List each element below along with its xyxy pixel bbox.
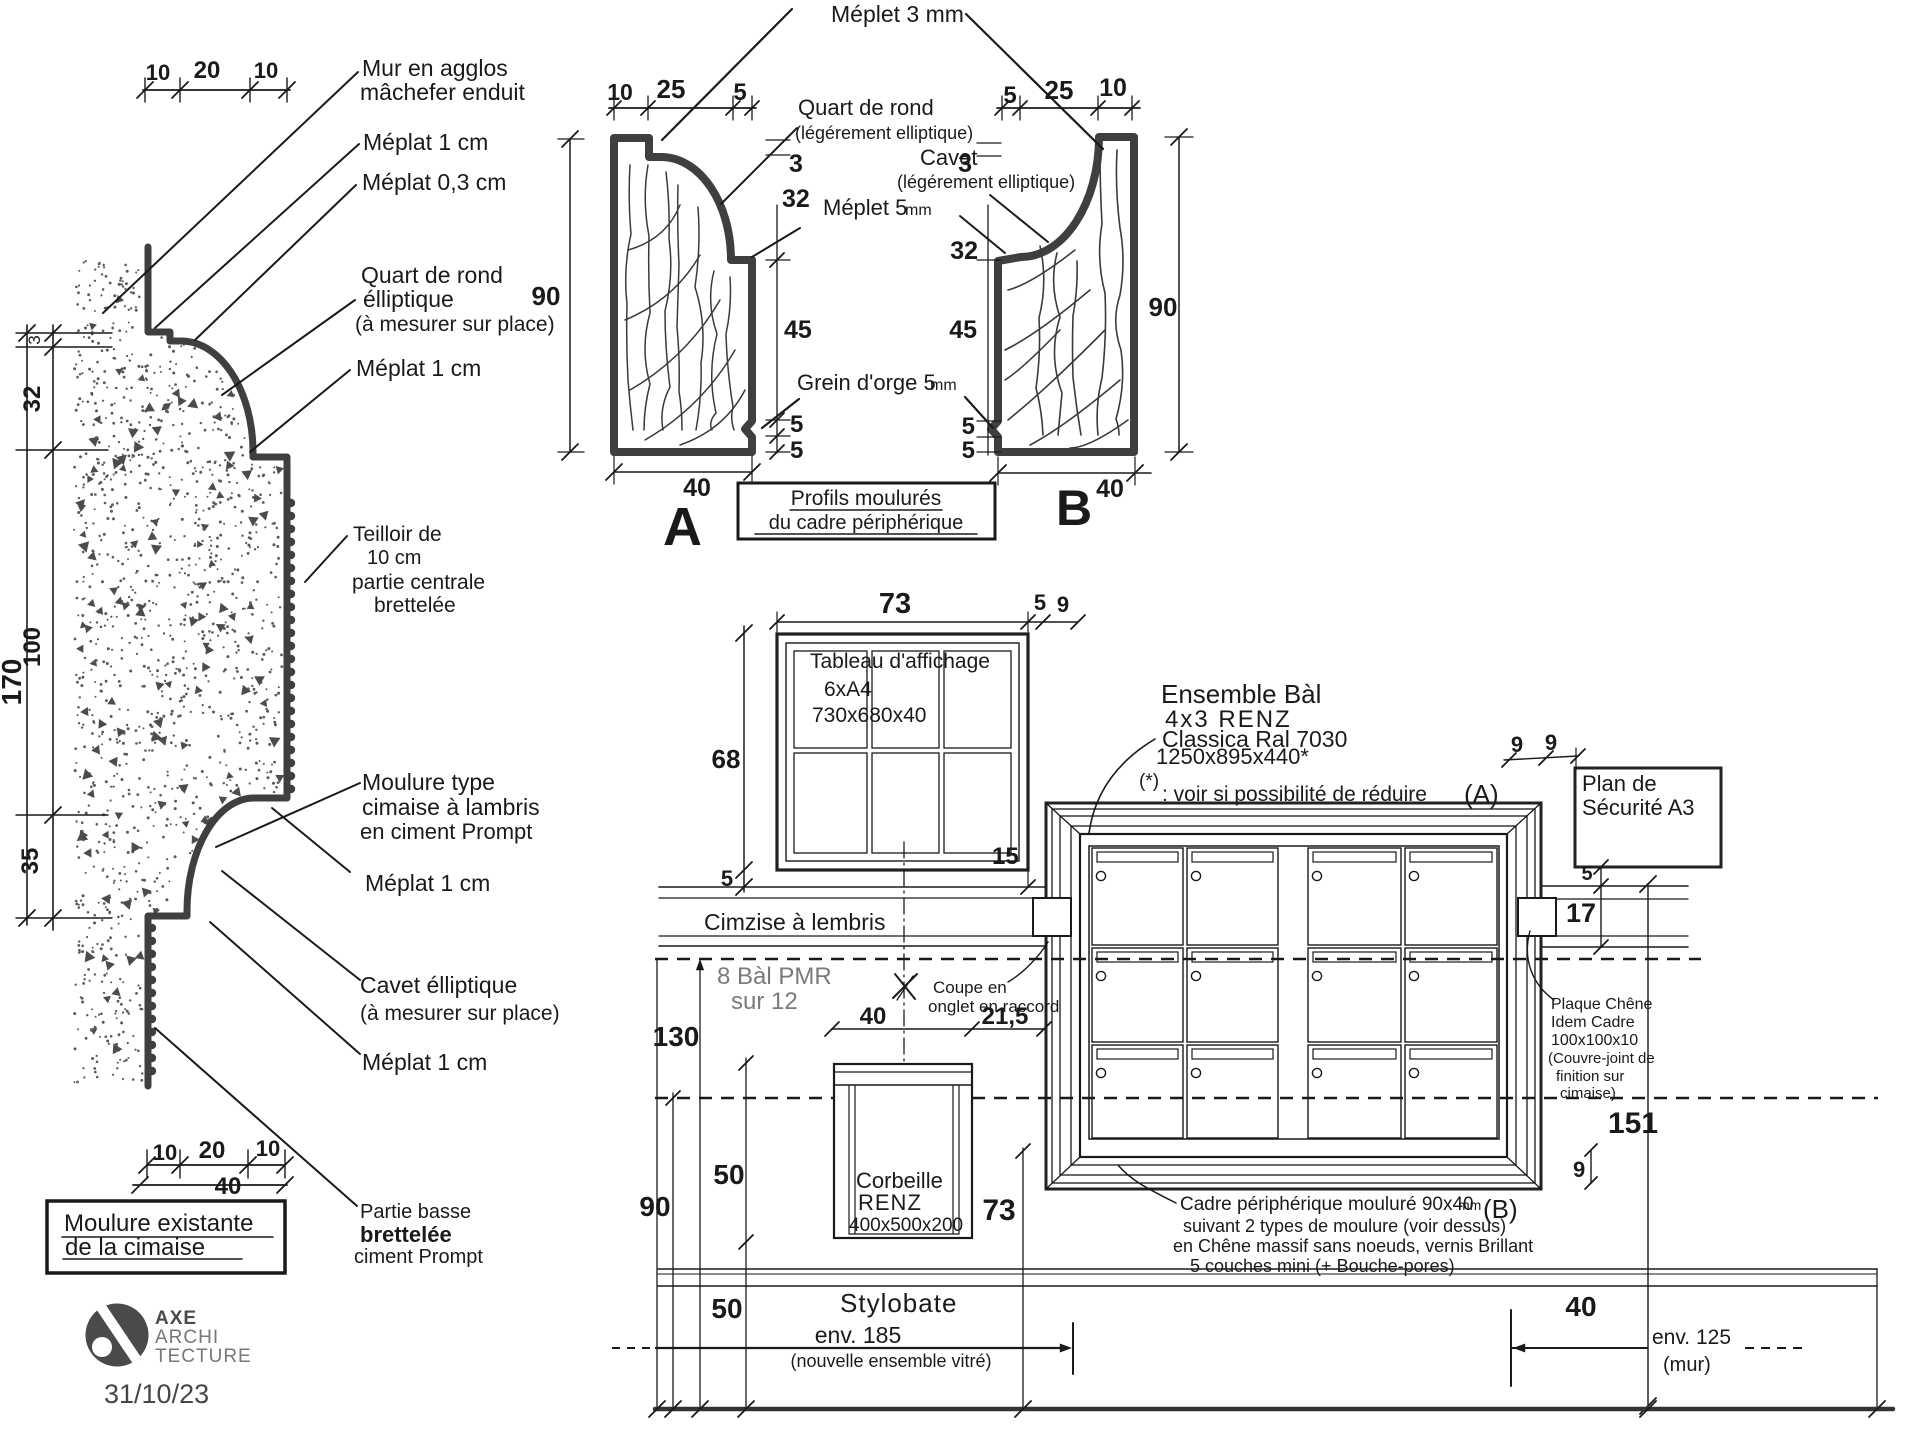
svg-text:Cavet élliptique: Cavet élliptique (360, 972, 517, 998)
svg-text:40: 40 (1565, 1291, 1596, 1322)
svg-text:25: 25 (657, 74, 686, 104)
svg-text:1250x895x440*: 1250x895x440* (1156, 744, 1309, 769)
svg-text:(A): (A) (1464, 779, 1499, 809)
svg-text:Méplat 1 cm: Méplat 1 cm (362, 1049, 487, 1075)
svg-text:élliptique: élliptique (363, 286, 454, 312)
svg-text:TECTURE: TECTURE (155, 1346, 252, 1367)
svg-text:Méplat 1 cm: Méplat 1 cm (363, 129, 488, 155)
svg-text:du cadre périphérique: du cadre périphérique (769, 512, 964, 534)
svg-text:(à mesurer sur place): (à mesurer sur place) (360, 1002, 560, 1025)
svg-text:5: 5 (790, 411, 803, 438)
svg-text:ciment Prompt: ciment Prompt (354, 1246, 483, 1268)
svg-text:31/10/23: 31/10/23 (104, 1379, 209, 1409)
svg-text:brettelée: brettelée (360, 1222, 452, 1247)
svg-text:10: 10 (1099, 74, 1127, 102)
svg-text:Méplat 0,3 cm: Méplat 0,3 cm (362, 169, 506, 195)
svg-text:68: 68 (712, 744, 741, 774)
svg-text:: voir si possibilité de rédui: : voir si possibilité de réduire (1162, 783, 1427, 806)
svg-text:brettelée: brettelée (374, 594, 456, 617)
svg-text:suivant 2 types de moulure: suivant 2 types de moulure (voir dessus) (1183, 1216, 1506, 1236)
svg-text:RENZ: RENZ (858, 1190, 922, 1215)
svg-text:mm: mm (1458, 1197, 1481, 1213)
svg-text:90: 90 (532, 281, 561, 311)
svg-text:5: 5 (962, 413, 975, 440)
svg-text:Cimzise à lembris: Cimzise à lembris (704, 909, 885, 935)
svg-text:Tableau d'affichage: Tableau d'affichage (810, 650, 990, 673)
svg-text:130: 130 (653, 1021, 700, 1052)
svg-text:Coupe en: Coupe en (933, 978, 1007, 997)
svg-text:finition sur: finition sur (1556, 1068, 1624, 1085)
svg-text:40: 40 (1096, 475, 1124, 503)
svg-text:5: 5 (733, 79, 746, 106)
svg-text:5: 5 (1581, 863, 1592, 885)
svg-text:Moulure type: Moulure type (362, 769, 495, 795)
svg-text:73: 73 (982, 1194, 1015, 1227)
svg-text:Quart de rond: Quart de rond (798, 95, 934, 120)
svg-text:10: 10 (256, 1136, 280, 1161)
svg-text:50: 50 (711, 1293, 742, 1324)
svg-text:90: 90 (639, 1191, 670, 1222)
svg-text:10: 10 (146, 60, 170, 85)
svg-text:40: 40 (215, 1173, 242, 1200)
svg-text:(mur): (mur) (1663, 1354, 1711, 1376)
svg-text:cimaise): cimaise) (1560, 1085, 1616, 1102)
svg-text:151: 151 (1608, 1107, 1658, 1140)
svg-text:sur 12: sur 12 (731, 988, 798, 1015)
svg-text:mâchefer enduit: mâchefer enduit (360, 79, 526, 105)
svg-text:8 Bàl PMR: 8 Bàl PMR (717, 963, 832, 990)
svg-text:5: 5 (1034, 590, 1046, 615)
svg-text:Cavet: Cavet (920, 145, 977, 170)
svg-text:50: 50 (713, 1159, 744, 1190)
svg-text:32: 32 (19, 386, 46, 413)
svg-text:ARCHI: ARCHI (155, 1327, 219, 1348)
svg-text:10: 10 (254, 58, 278, 83)
svg-text:Méplat 1 cm: Méplat 1 cm (365, 870, 490, 896)
svg-text:730x680x40: 730x680x40 (812, 704, 926, 727)
svg-text:15: 15 (992, 843, 1019, 870)
svg-text:Plaque Chêne: Plaque Chêne (1551, 996, 1653, 1013)
svg-text:21,5: 21,5 (982, 1003, 1029, 1030)
svg-text:400x500x200: 400x500x200 (849, 1215, 963, 1236)
svg-text:45: 45 (949, 316, 977, 344)
svg-text:en Chêne massif sans noeuds,: en Chêne massif sans noeuds, vernis Bril… (1173, 1236, 1533, 1256)
svg-text:5 couches mini (+ Bouche-pore: 5 couches mini (+ Bouche-pores) (1190, 1256, 1455, 1276)
svg-text:Sécurité A3: Sécurité A3 (1582, 795, 1695, 820)
svg-text:3: 3 (25, 335, 44, 344)
svg-text:(*): (*) (1139, 771, 1159, 792)
svg-text:9: 9 (1511, 732, 1523, 757)
svg-text:cimaise à lambris: cimaise à lambris (362, 794, 540, 820)
svg-text:A: A (663, 497, 702, 557)
svg-text:Plan de: Plan de (1582, 771, 1657, 796)
svg-text:B: B (1056, 480, 1092, 536)
svg-text:100x100x10: 100x100x10 (1551, 1032, 1638, 1049)
svg-text:9: 9 (1057, 592, 1069, 617)
svg-text:10 cm: 10 cm (367, 547, 421, 569)
svg-text:35: 35 (17, 848, 44, 875)
svg-text:5: 5 (1003, 82, 1016, 109)
svg-text:Quart de rond: Quart de rond (361, 262, 503, 288)
svg-text:40: 40 (860, 1003, 887, 1030)
svg-text:10: 10 (607, 79, 633, 105)
svg-text:17: 17 (1566, 898, 1596, 928)
svg-text:Stylobate: Stylobate (840, 1288, 957, 1318)
svg-text:mm: mm (930, 377, 957, 394)
svg-text:env. 185: env. 185 (815, 1322, 902, 1348)
svg-text:en ciment Prompt: en ciment Prompt (360, 819, 532, 844)
svg-text:Cadre périphérique mouluré 90x: Cadre périphérique mouluré 90x40 (1180, 1194, 1474, 1215)
svg-text:Ensemble Bàl: Ensemble Bàl (1161, 679, 1321, 709)
svg-text:(nouvelle ensemble vitré): (nouvelle ensemble vitré) (790, 1351, 991, 1371)
svg-text:73: 73 (879, 588, 911, 620)
svg-text:100: 100 (19, 627, 46, 667)
svg-text:Partie basse: Partie basse (360, 1201, 471, 1223)
svg-text:Méplat 1 cm: Méplat 1 cm (356, 355, 481, 381)
svg-text:(légérement elliptique): (légérement elliptique) (795, 123, 973, 143)
svg-text:Mur en agglos: Mur en agglos (362, 55, 508, 81)
svg-text:Profils moulurés: Profils moulurés (791, 487, 942, 510)
svg-text:(à mesurer sur place): (à mesurer sur place) (355, 313, 555, 336)
svg-text:25: 25 (1045, 75, 1074, 105)
svg-text:Méplet 3 mm: Méplet 3 mm (831, 1, 964, 27)
svg-text:5: 5 (962, 437, 975, 464)
svg-text:3: 3 (789, 150, 803, 178)
svg-text:5: 5 (721, 866, 733, 891)
svg-text:(légérement elliptique): (légérement elliptique) (897, 172, 1075, 192)
svg-text:Idem Cadre: Idem Cadre (1551, 1014, 1635, 1031)
svg-text:90: 90 (1149, 292, 1178, 322)
svg-text:(Couvre-joint de: (Couvre-joint de (1548, 1050, 1655, 1067)
svg-text:de la cimaise: de la cimaise (65, 1234, 205, 1261)
svg-text:env. 125: env. 125 (1652, 1326, 1731, 1349)
svg-text:9: 9 (1573, 1157, 1585, 1182)
svg-text:Moulure existante: Moulure existante (64, 1210, 253, 1237)
svg-text:20: 20 (199, 1137, 226, 1164)
svg-text:5: 5 (790, 437, 803, 464)
svg-text:Grein d'orge 5: Grein d'orge 5 (797, 370, 936, 395)
svg-text:45: 45 (784, 316, 812, 344)
svg-text:partie centrale: partie centrale (352, 571, 485, 594)
svg-text:32: 32 (782, 185, 810, 213)
svg-text:mm: mm (905, 202, 932, 219)
svg-text:Teilloir de: Teilloir de (353, 523, 442, 546)
svg-text:AXE: AXE (155, 1308, 197, 1329)
svg-text:20: 20 (194, 57, 221, 84)
svg-text:Méplet 5: Méplet 5 (823, 195, 907, 220)
svg-text:9: 9 (1545, 730, 1557, 755)
svg-text:32: 32 (950, 237, 978, 265)
svg-text:10: 10 (153, 1140, 177, 1165)
svg-text:6xA4: 6xA4 (824, 678, 872, 701)
